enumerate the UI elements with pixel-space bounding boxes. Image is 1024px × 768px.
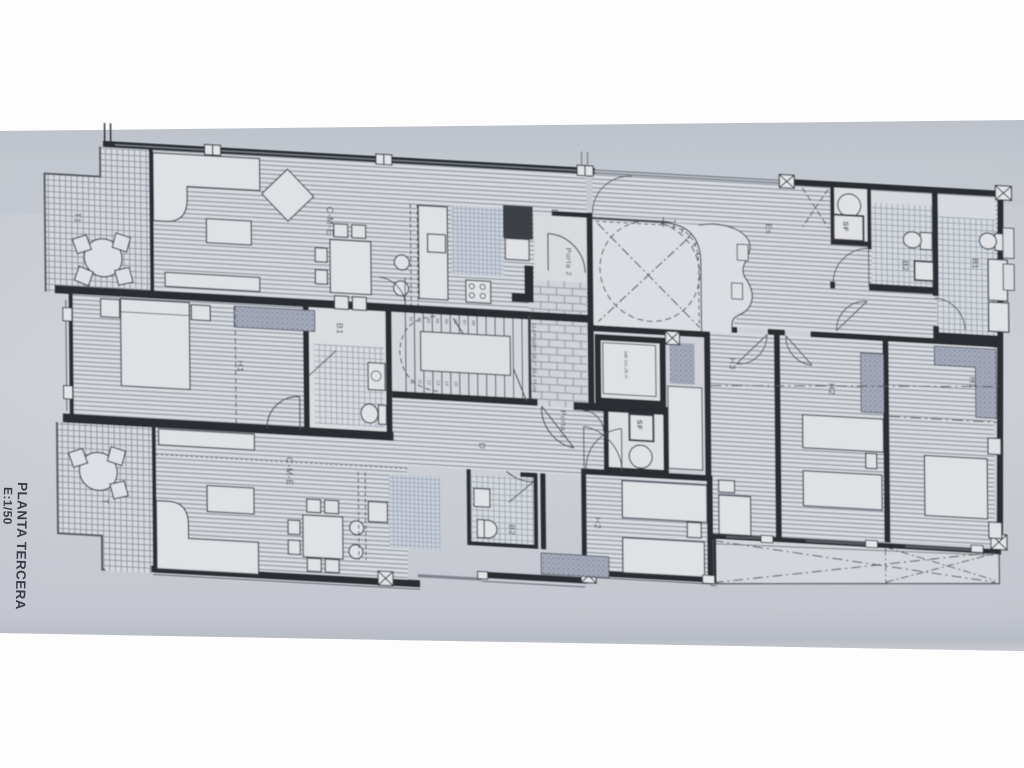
svg-text:15: 15 [454,381,459,387]
svg-text:H3: H3 [727,358,737,371]
svg-text:B2: B2 [507,524,516,535]
svg-text:T: T [101,499,110,505]
svg-text:14: 14 [445,381,450,387]
svg-text:11: 11 [418,379,423,384]
svg-text:03: 03 [426,318,431,324]
svg-text:06: 06 [453,319,458,325]
svg-text:H2: H2 [593,517,603,530]
svg-text:T1: T1 [73,212,82,223]
svg-text:04: 04 [435,318,440,324]
svg-text:12: 12 [427,380,432,386]
svg-text:10: 10 [409,379,414,385]
svg-text:Porta 1: Porta 1 [559,410,568,439]
svg-text:sab 1x1,26 m: sab 1x1,26 m [624,351,629,379]
svg-text:08: 08 [471,320,476,326]
svg-text:D: D [550,209,559,216]
svg-text:07: 07 [462,320,467,326]
svg-text:Es: Es [764,224,773,235]
svg-text:C-M-E: C-M-E [325,206,335,235]
svg-text:SF: SF [841,221,850,232]
svg-text:02: 02 [417,317,422,323]
svg-text:D: D [477,443,486,450]
svg-text:E:1/50: E:1/50 [0,487,15,525]
svg-text:SF: SF [635,419,644,430]
svg-text:05: 05 [444,319,449,325]
svg-text:B2: B2 [901,260,910,271]
svg-text:01: 01 [408,317,413,323]
svg-text:13: 13 [436,380,441,386]
svg-text:B1: B1 [335,323,345,335]
svg-text:B1: B1 [970,258,979,269]
svg-text:17 GRAONS DE 17,65 x 28 cm: 17 GRAONS DE 17,65 x 28 cm [531,323,538,393]
svg-text:H2: H2 [827,383,837,396]
svg-text:Porta 2: Porta 2 [564,247,573,276]
svg-text:H1: H1 [236,360,246,373]
svg-text:C-M-E: C-M-E [284,457,294,486]
svg-text:H1: H1 [967,377,977,390]
